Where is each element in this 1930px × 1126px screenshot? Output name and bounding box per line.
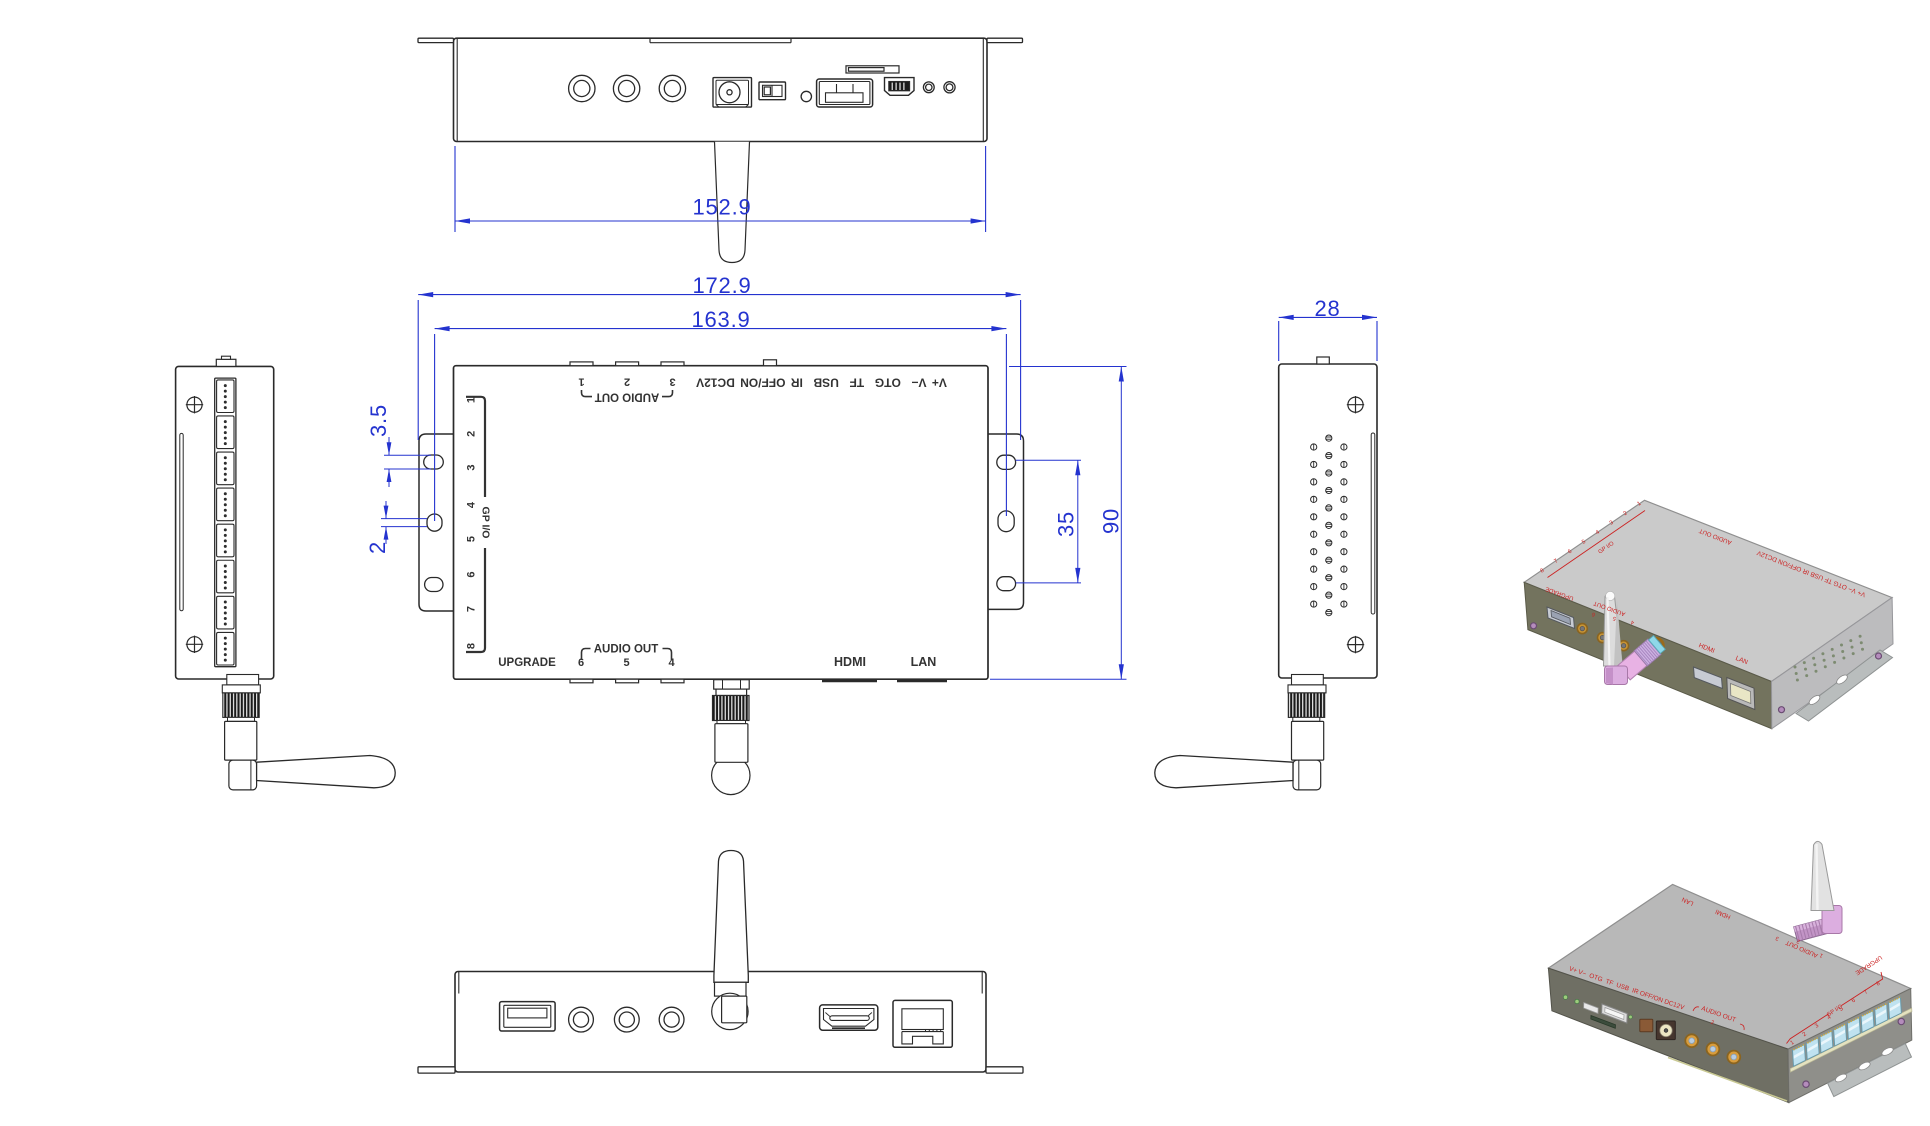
svg-text:28: 28 xyxy=(1314,296,1340,321)
svg-text:1: 1 xyxy=(578,375,584,387)
svg-text:AUDIO OUT: AUDIO OUT xyxy=(595,391,660,403)
svg-text:3: 3 xyxy=(466,465,478,471)
svg-text:163.9: 163.9 xyxy=(691,307,750,332)
svg-text:3.5: 3.5 xyxy=(366,404,391,437)
svg-text:5: 5 xyxy=(466,536,478,542)
svg-text:152.9: 152.9 xyxy=(692,195,751,220)
svg-text:2: 2 xyxy=(624,375,630,387)
svg-text:HDMI: HDMI xyxy=(834,655,866,669)
svg-text:LAN: LAN xyxy=(911,655,937,669)
svg-text:3: 3 xyxy=(669,375,675,387)
svg-text:7: 7 xyxy=(466,606,478,612)
svg-text:5: 5 xyxy=(623,657,629,669)
svg-text:V+ V− OTG TF USB IR OFF/ON: V+ V− OTG TF USB IR OFF/ON DC12V xyxy=(696,375,947,389)
svg-text:2: 2 xyxy=(365,541,390,554)
svg-text:90: 90 xyxy=(1098,508,1123,534)
svg-text:6: 6 xyxy=(466,571,478,577)
svg-text:2: 2 xyxy=(466,431,478,437)
svg-text:8: 8 xyxy=(466,643,478,649)
svg-text:35: 35 xyxy=(1053,511,1078,537)
svg-text:AUDIO OUT: AUDIO OUT xyxy=(594,644,659,656)
svg-text:UPGRADE: UPGRADE xyxy=(498,657,556,669)
svg-text:GP I/O: GP I/O xyxy=(480,507,492,539)
svg-text:4: 4 xyxy=(466,501,478,508)
svg-text:172.9: 172.9 xyxy=(692,273,751,298)
